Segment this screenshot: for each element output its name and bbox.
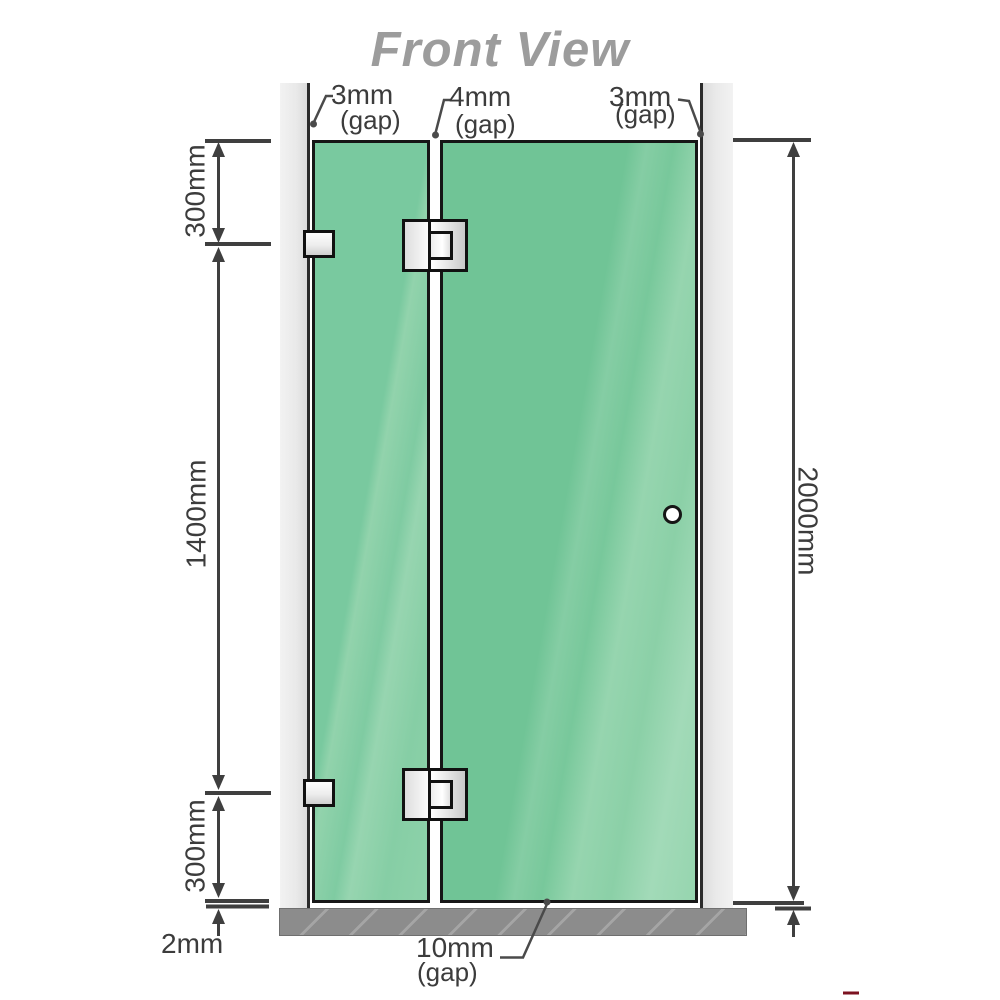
panel-gap-line: [428, 809, 431, 818]
door-hinge-top: [402, 219, 468, 272]
panel-gap-line: [428, 260, 431, 269]
hinge-knuckle: [428, 780, 453, 809]
panel-gap-line: [428, 222, 431, 231]
top-right-gap-suffix: (gap): [615, 101, 676, 128]
front-view-diagram: Front View: [0, 0, 1000, 1000]
top-left-gap-suffix: (gap): [340, 107, 401, 134]
door-hinge-bottom: [402, 768, 468, 821]
right-total-height-label: 2000mm: [793, 467, 822, 576]
bottom-left-gap-label: 2mm: [161, 930, 223, 959]
left-middle-height-label: 1400mm: [183, 460, 212, 569]
left-bottom-height-label: 300mm: [182, 799, 211, 892]
top-center-gap-suffix: (gap): [455, 111, 516, 138]
wall-bracket-bottom: [303, 779, 335, 807]
right-wall-channel: [700, 83, 733, 908]
diagram-title: Front View: [0, 22, 1000, 78]
panel-gap-line: [428, 771, 431, 780]
floor-base: [279, 908, 747, 936]
top-center-gap-label: 4mm: [449, 83, 511, 112]
door-glass-panel: [440, 140, 698, 903]
left-top-height-label: 300mm: [182, 144, 211, 237]
wall-bracket-top: [303, 230, 335, 258]
hinge-knuckle: [428, 231, 453, 260]
bottom-center-gap-suffix: (gap): [417, 959, 478, 986]
door-knob: [663, 505, 682, 524]
